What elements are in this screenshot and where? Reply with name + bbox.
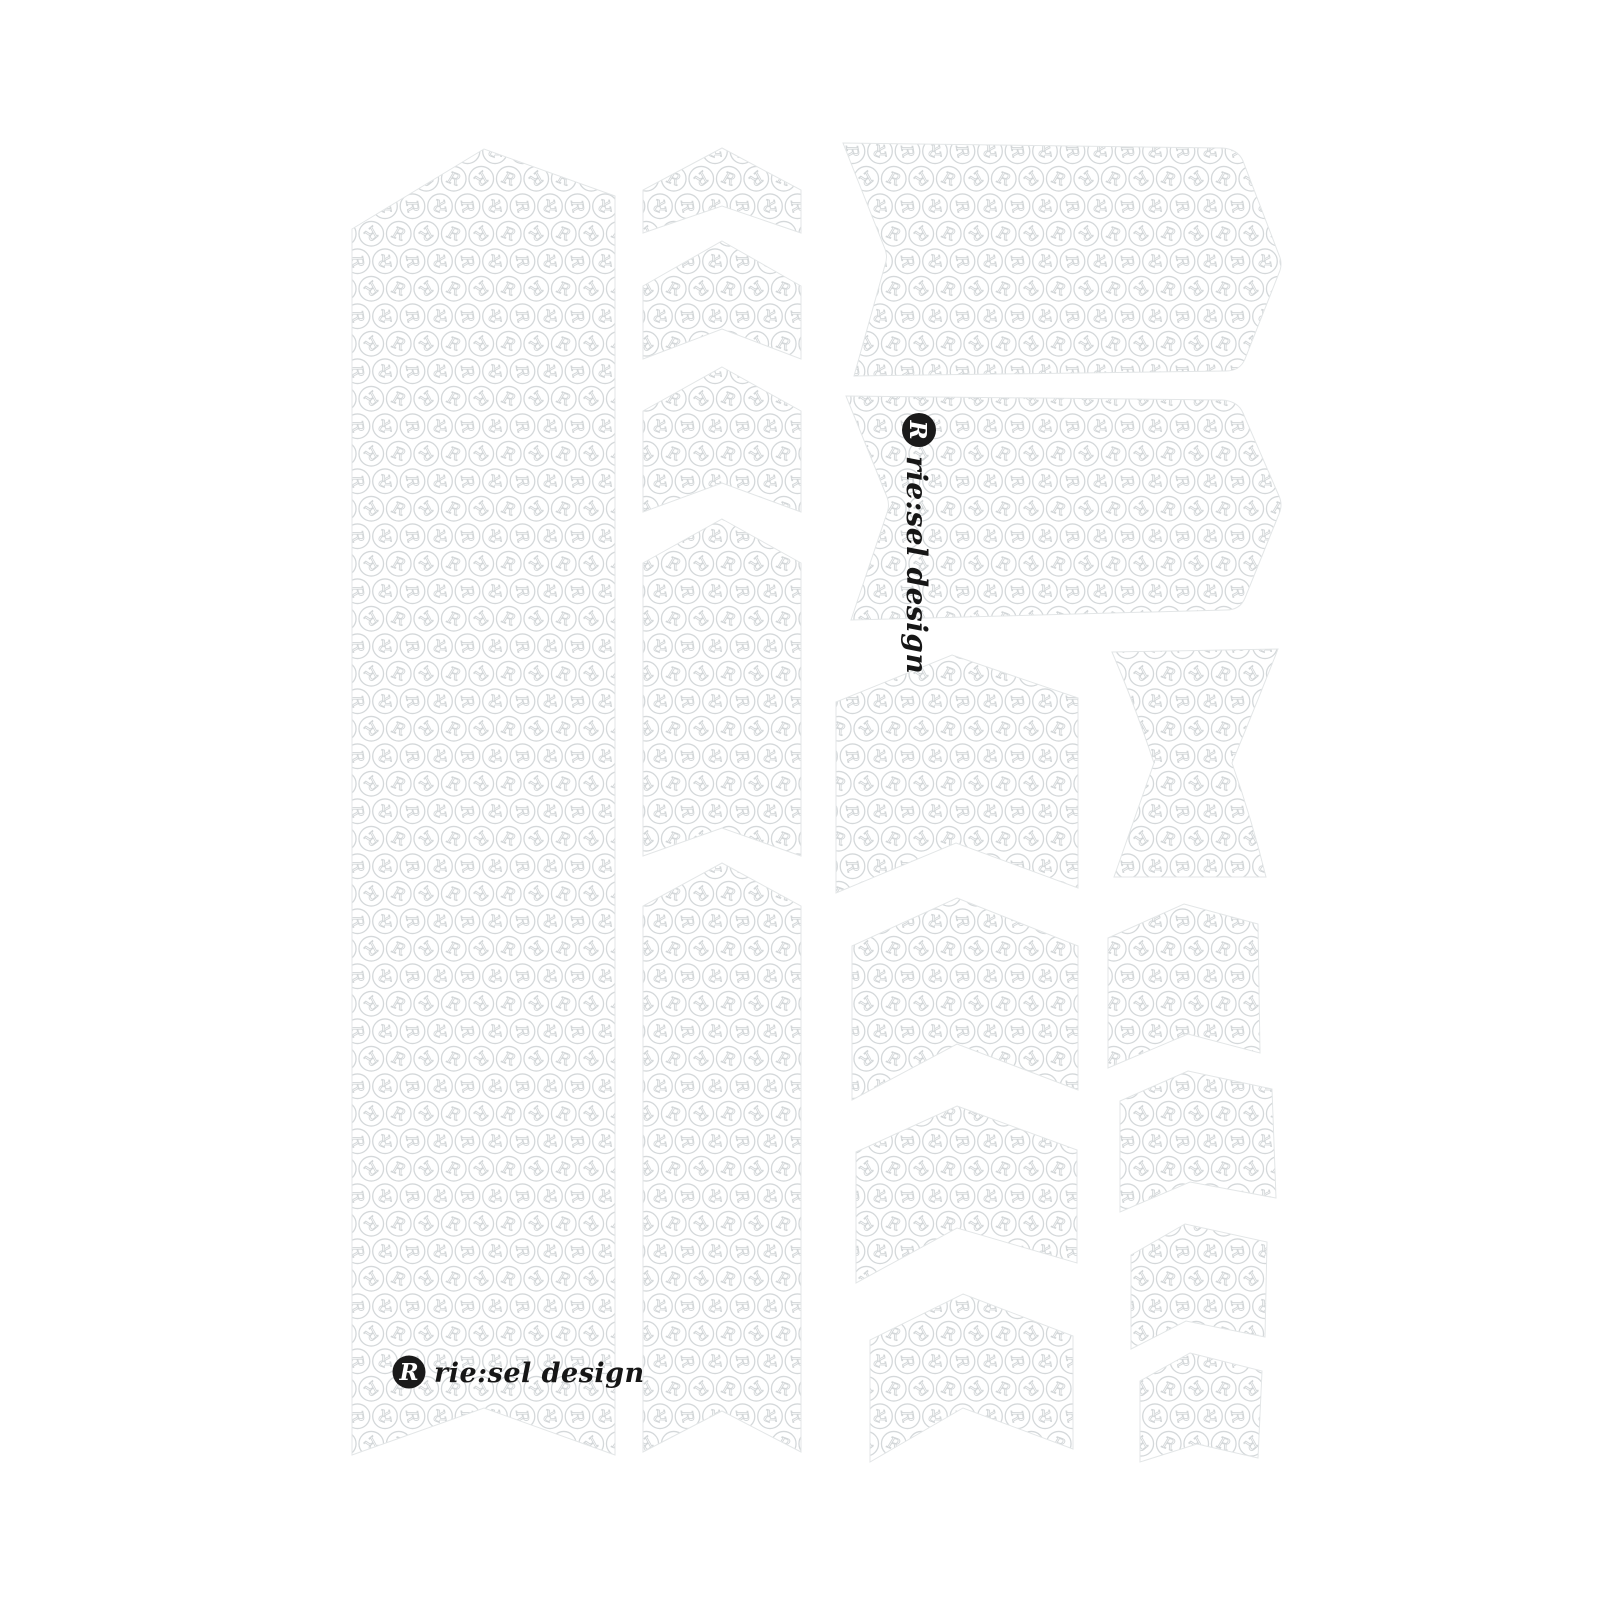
decal-chevron-wide-2 xyxy=(852,898,1078,1100)
decal-bowtie xyxy=(1112,649,1278,877)
decal-chevron-narrow-1 xyxy=(1108,904,1260,1068)
decal-sheet-canvas: R R R R R R xyxy=(0,0,1600,1600)
decal-chevron-narrow-2 xyxy=(1120,1071,1276,1212)
decal-chevron-wide-4 xyxy=(870,1294,1073,1462)
decal-chevron-small-4 xyxy=(643,519,801,856)
decal-chevron-wide-1 xyxy=(836,655,1078,893)
decal-chevron-wide-3 xyxy=(856,1106,1077,1283)
decal-banner-top xyxy=(843,143,1281,376)
decal-chevron-small-2 xyxy=(643,241,801,359)
sticker-sheet: R R R R R R xyxy=(0,0,1600,1600)
brand-wordmark: rie:sel design xyxy=(434,1358,645,1389)
decal-chevron-small-3 xyxy=(643,367,801,512)
brand-initial: R xyxy=(398,1359,418,1386)
decal-chevron-small-1 xyxy=(643,148,801,233)
decal-frame-strip-large xyxy=(352,149,615,1455)
brand-wordmark: rie:sel design xyxy=(900,456,933,674)
decal-chevron-narrow-4 xyxy=(1140,1353,1262,1462)
decal-tail-strip xyxy=(643,863,801,1452)
brand-initial: R xyxy=(904,419,931,439)
decal-chevron-narrow-3 xyxy=(1131,1224,1267,1349)
